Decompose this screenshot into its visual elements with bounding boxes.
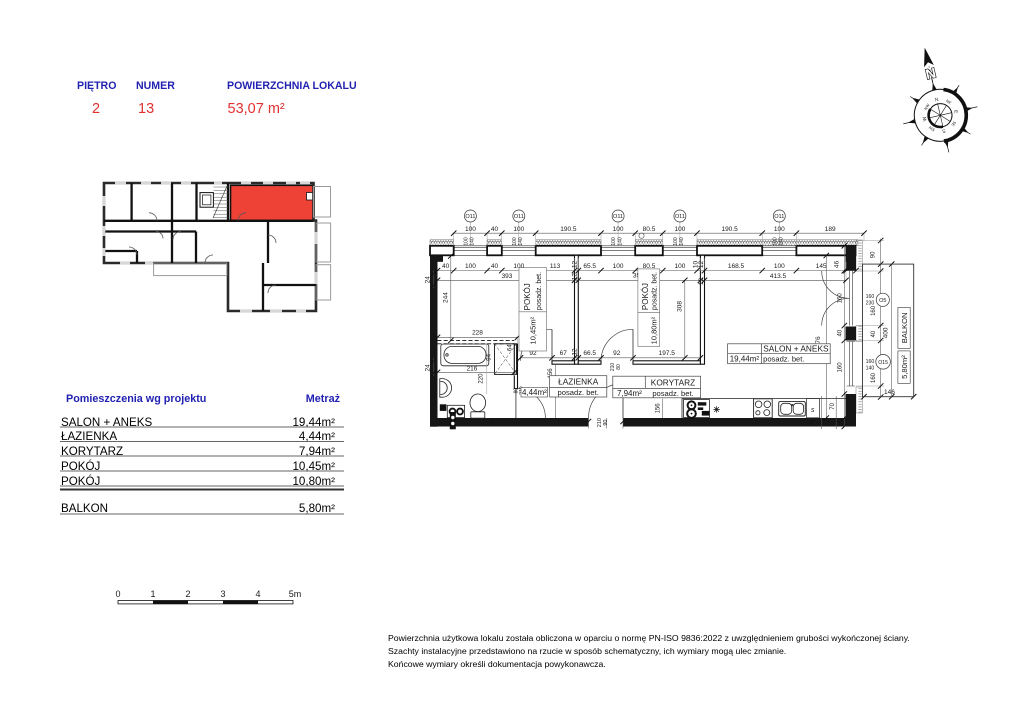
svg-text:67: 67 xyxy=(560,350,568,357)
svg-text:140: 140 xyxy=(779,237,785,246)
svg-text:244: 244 xyxy=(442,292,449,303)
svg-text:113: 113 xyxy=(550,263,561,270)
svg-text:10,45m²: 10,45m² xyxy=(529,316,538,344)
svg-text:100: 100 xyxy=(611,237,617,246)
svg-text:POKÓJ: POKÓJ xyxy=(641,283,650,310)
svg-text:40: 40 xyxy=(442,263,450,270)
svg-text:N: N xyxy=(924,64,937,82)
svg-text:O11: O11 xyxy=(774,214,784,220)
svg-text:80: 80 xyxy=(616,364,622,370)
svg-text:O11: O11 xyxy=(675,214,685,220)
svg-text:64: 64 xyxy=(508,344,514,351)
svg-text:46: 46 xyxy=(834,261,841,269)
svg-text:413.5: 413.5 xyxy=(770,273,787,280)
svg-text:100: 100 xyxy=(674,226,685,233)
svg-text:140: 140 xyxy=(617,237,623,246)
svg-text:posadz. bet.: posadz. bet. xyxy=(536,272,543,310)
svg-text:POKÓJ: POKÓJ xyxy=(523,283,532,310)
svg-text:393: 393 xyxy=(502,273,513,280)
svg-text:O5: O5 xyxy=(879,298,886,304)
svg-text:160: 160 xyxy=(871,372,877,383)
svg-text:W: W xyxy=(922,115,929,121)
svg-text:10,80m²: 10,80m² xyxy=(649,316,658,344)
svg-text:100: 100 xyxy=(774,226,785,233)
svg-text:12: 12 xyxy=(571,261,578,269)
svg-text:12: 12 xyxy=(571,348,578,356)
svg-text:228: 228 xyxy=(472,330,483,337)
svg-text:160: 160 xyxy=(837,293,843,304)
svg-text:O15: O15 xyxy=(878,360,888,366)
svg-text:160: 160 xyxy=(871,305,877,316)
svg-text:100: 100 xyxy=(774,263,785,270)
svg-text:24: 24 xyxy=(425,276,432,284)
svg-text:5,80m²: 5,80m² xyxy=(900,355,909,379)
svg-text:100: 100 xyxy=(673,237,679,246)
svg-text:4: 4 xyxy=(255,589,260,599)
svg-text:posadz. bet.: posadz. bet. xyxy=(652,389,693,398)
svg-text:posadz. bet.: posadz. bet. xyxy=(558,388,599,397)
svg-text:70: 70 xyxy=(830,402,836,409)
svg-text:90: 90 xyxy=(871,251,877,258)
svg-text:24: 24 xyxy=(425,364,432,372)
svg-text:E: E xyxy=(952,110,959,114)
svg-text:197.5: 197.5 xyxy=(659,350,676,357)
svg-text:40: 40 xyxy=(837,329,843,336)
svg-text:140: 140 xyxy=(866,365,875,371)
svg-text:7,94m²: 7,94m² xyxy=(617,389,642,398)
svg-text:3: 3 xyxy=(220,589,225,599)
svg-text:KORYTARZ: KORYTARZ xyxy=(651,377,695,387)
svg-text:12: 12 xyxy=(571,273,578,281)
svg-text:0: 0 xyxy=(115,589,120,599)
svg-text:65.5: 65.5 xyxy=(583,263,596,270)
svg-text:100: 100 xyxy=(465,226,476,233)
svg-text:94: 94 xyxy=(487,353,493,360)
svg-text:4,44m²: 4,44m² xyxy=(522,388,547,397)
svg-text:400: 400 xyxy=(883,327,890,338)
svg-text:308: 308 xyxy=(677,301,684,312)
svg-text:80.5: 80.5 xyxy=(643,226,656,233)
svg-text:100: 100 xyxy=(464,237,470,246)
svg-text:S: S xyxy=(942,127,946,134)
svg-text:160: 160 xyxy=(837,362,843,373)
svg-text:12: 12 xyxy=(698,278,705,286)
svg-text:189: 189 xyxy=(825,226,836,233)
svg-text:160: 160 xyxy=(866,359,875,365)
svg-text:92: 92 xyxy=(613,350,621,357)
svg-text:168.5: 168.5 xyxy=(728,263,745,270)
svg-text:O11: O11 xyxy=(465,214,475,220)
svg-text:2: 2 xyxy=(185,589,190,599)
svg-text:210: 210 xyxy=(597,418,603,427)
svg-text:O11: O11 xyxy=(514,214,524,220)
svg-text:SE: SE xyxy=(950,120,957,127)
svg-text:140: 140 xyxy=(470,237,476,246)
svg-text:66.5: 66.5 xyxy=(583,350,596,357)
svg-text:s: s xyxy=(811,407,815,414)
svg-text:190.5: 190.5 xyxy=(560,226,577,233)
svg-text:BALKON: BALKON xyxy=(900,312,909,343)
svg-text:N: N xyxy=(934,97,939,104)
svg-text:220: 220 xyxy=(479,373,485,384)
svg-text:190.5: 190.5 xyxy=(721,226,738,233)
svg-text:216: 216 xyxy=(467,365,478,372)
svg-text:100: 100 xyxy=(465,263,476,270)
svg-text:40: 40 xyxy=(871,330,877,337)
svg-text:posadz. bet.: posadz. bet. xyxy=(763,354,804,363)
svg-text:ŁAZIENKA: ŁAZIENKA xyxy=(558,377,599,387)
svg-text:100: 100 xyxy=(512,237,518,246)
svg-text:156: 156 xyxy=(655,403,661,414)
svg-text:140: 140 xyxy=(518,237,524,246)
svg-text:145: 145 xyxy=(816,263,827,270)
svg-text:5m: 5m xyxy=(289,589,302,599)
svg-text:SALON + ANEKS: SALON + ANEKS xyxy=(763,343,829,353)
svg-text:posadz. bet.: posadz. bet. xyxy=(651,272,658,310)
svg-text:100: 100 xyxy=(772,237,778,246)
svg-text:40: 40 xyxy=(491,226,499,233)
svg-text:90: 90 xyxy=(603,420,609,426)
svg-text:40: 40 xyxy=(491,263,499,270)
svg-text:100: 100 xyxy=(613,226,624,233)
svg-text:100: 100 xyxy=(613,263,624,270)
svg-text:19,44m²: 19,44m² xyxy=(730,354,760,363)
svg-text:160: 160 xyxy=(866,294,875,300)
svg-text:140: 140 xyxy=(679,237,685,246)
svg-text:NE: NE xyxy=(945,98,953,105)
svg-text:12: 12 xyxy=(698,261,705,269)
svg-text:O11: O11 xyxy=(613,214,623,220)
svg-text:1: 1 xyxy=(150,589,155,599)
svg-text:146: 146 xyxy=(884,389,895,396)
svg-text:100: 100 xyxy=(674,263,685,270)
svg-text:230: 230 xyxy=(866,301,875,307)
svg-text:100: 100 xyxy=(513,226,524,233)
